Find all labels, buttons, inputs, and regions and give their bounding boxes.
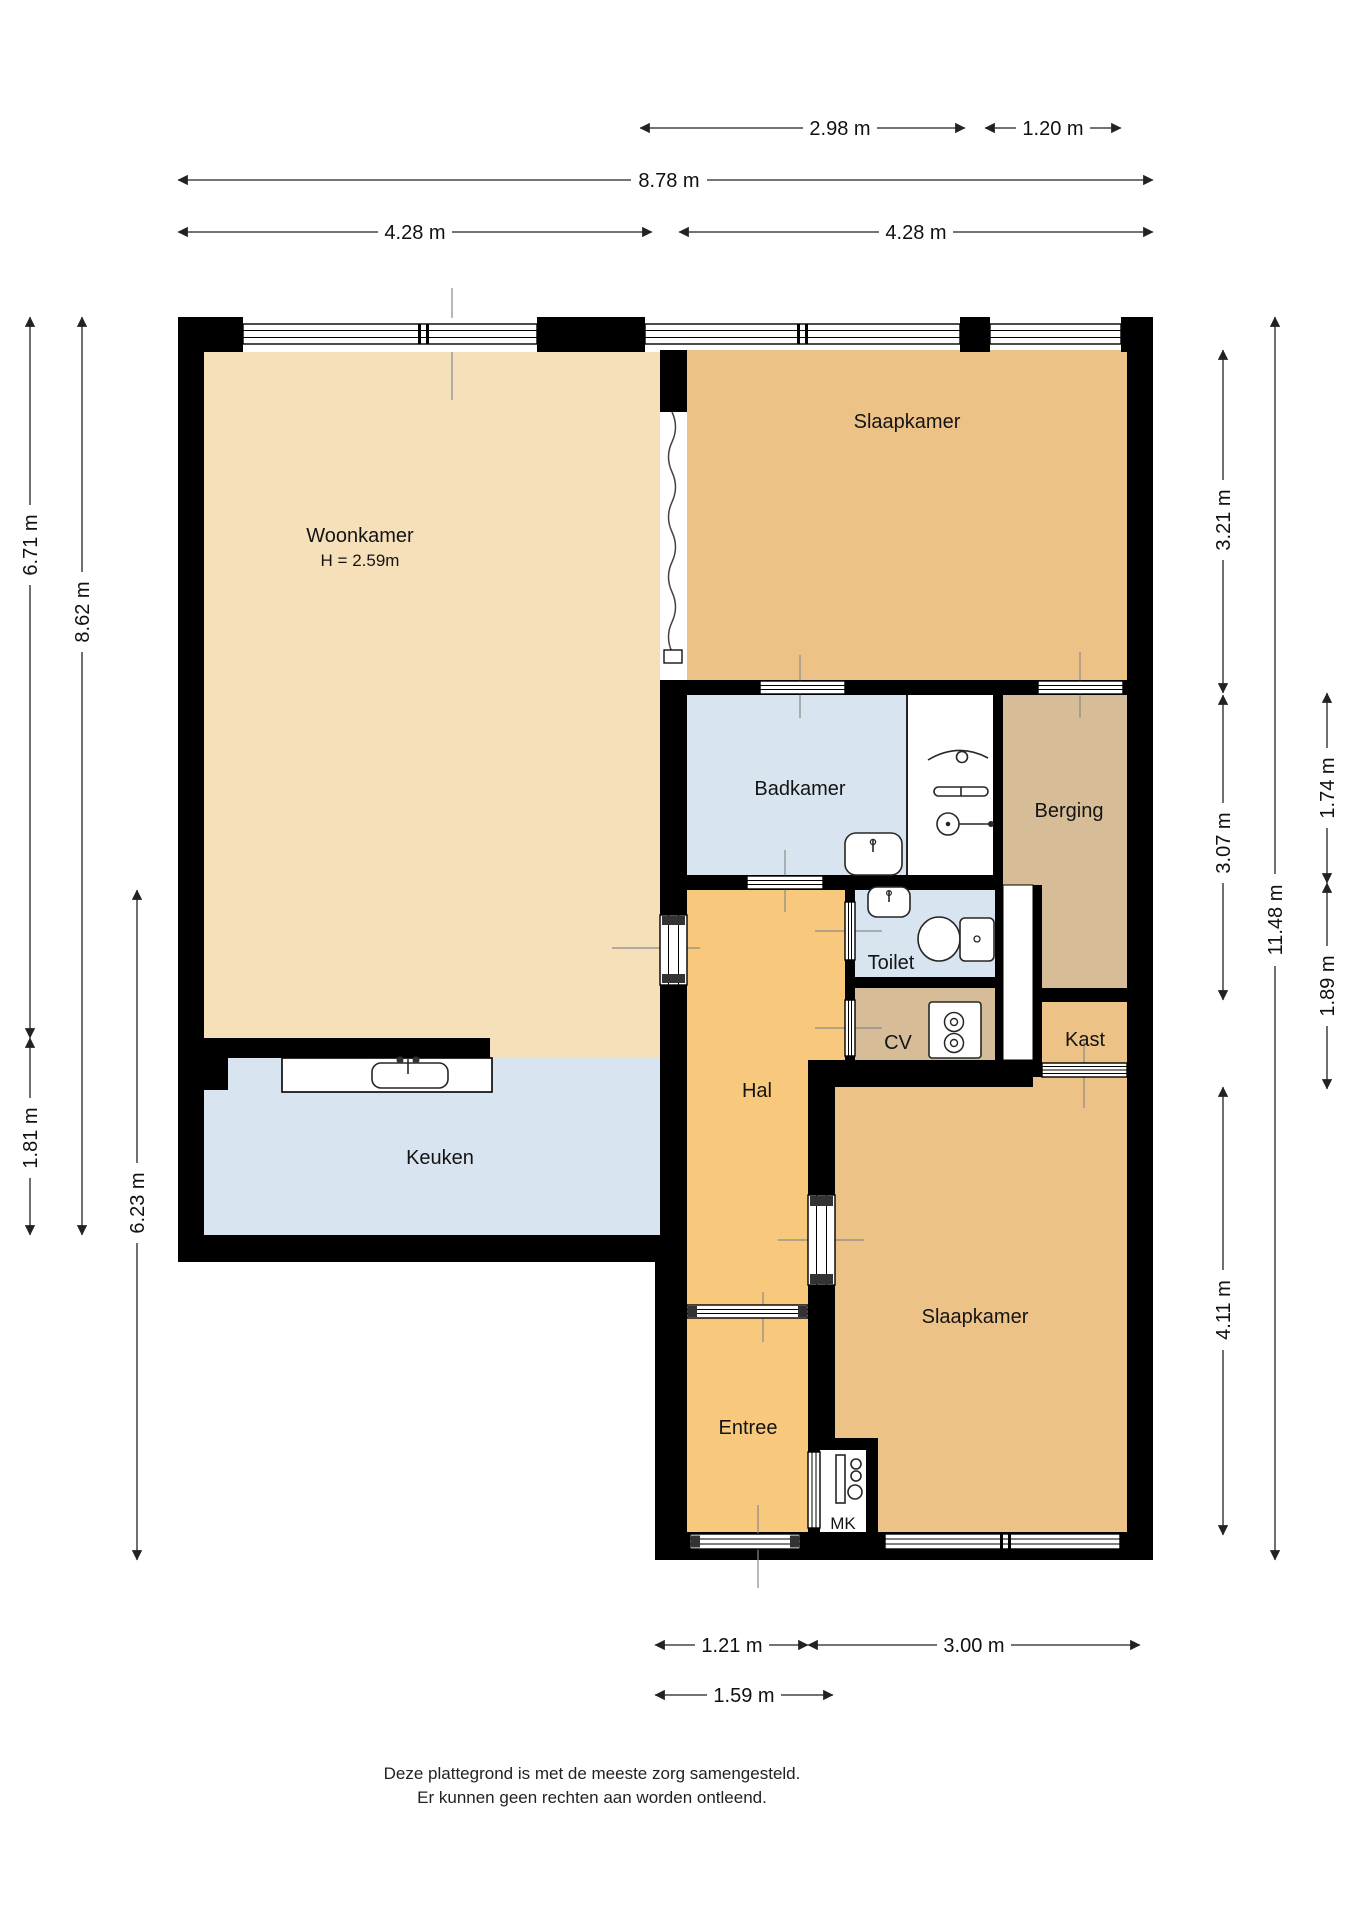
door-hal-entree — [687, 1305, 808, 1318]
hal-label: Hal — [742, 1080, 772, 1102]
dim-top-878: 8.78 m — [178, 168, 1153, 192]
kast-louvre-door — [1042, 1063, 1127, 1077]
svg-text:8.78 m: 8.78 m — [638, 170, 699, 192]
svg-text:1.81 m: 1.81 m — [20, 1107, 42, 1168]
hal-floor-lower — [687, 1087, 808, 1318]
svg-text:1.20 m: 1.20 m — [1022, 118, 1083, 140]
woonkamer-height-note: H = 2.59m — [321, 551, 400, 570]
svg-text:2.98 m: 2.98 m — [809, 118, 870, 140]
svg-text:4.11 m: 4.11 m — [1213, 1280, 1235, 1340]
dim-top-298: 2.98 m — [640, 116, 965, 140]
mk-label: MK — [830, 1514, 856, 1533]
curtain-partition — [664, 412, 682, 663]
berging-label: Berging — [1035, 800, 1104, 822]
dim-left-181: 1.81 m — [18, 1038, 42, 1235]
door-hal-slaapkamer — [808, 1195, 835, 1285]
toilet-fontein — [868, 887, 910, 917]
floor-plan: Woonkamer H = 2.59m Slaapkamer Badkamer … — [0, 0, 1358, 1920]
dim-left-671: 6.71 m — [18, 317, 42, 1038]
dim-left-862: 8.62 m — [70, 317, 94, 1235]
svg-text:3.00 m: 3.00 m — [943, 1635, 1004, 1657]
svg-text:6.23 m: 6.23 m — [127, 1172, 149, 1233]
window-woonkamer-top — [243, 324, 537, 344]
kitchen-sink — [372, 1063, 448, 1088]
slaapkamer-top-label: Slaapkamer — [854, 411, 961, 433]
dim-bottom-300: 3.00 m — [808, 1633, 1140, 1657]
hal-floor-upper — [687, 890, 845, 1087]
floorplan-page: Woonkamer H = 2.59m Slaapkamer Badkamer … — [0, 0, 1358, 1920]
shower-floor — [908, 695, 993, 875]
door-mk — [808, 1452, 820, 1528]
window-slaapkamer-bottom — [885, 1534, 1120, 1549]
window-slaapkamer-badkamer — [760, 681, 845, 694]
svg-text:11.48 m: 11.48 m — [1265, 885, 1287, 956]
entree-label: Entree — [719, 1417, 778, 1439]
window-top-right — [990, 324, 1121, 344]
svg-text:1.59 m: 1.59 m — [713, 1685, 774, 1707]
dim-top-428-left: 4.28 m — [178, 220, 652, 244]
kitchen-counter — [282, 1057, 492, 1093]
dim-bottom-159: 1.59 m — [655, 1683, 833, 1707]
window-slaapkamer-berging — [1038, 681, 1123, 694]
woonkamer-keuken-opening-floor — [490, 1038, 660, 1060]
dim-right-174: 1.74 m — [1315, 693, 1339, 883]
dim-right-411: 4.11 m — [1211, 1087, 1235, 1535]
svg-text:4.28 m: 4.28 m — [885, 222, 946, 244]
cv-boiler — [929, 1002, 981, 1058]
svg-text:3.21 m: 3.21 m — [1213, 489, 1235, 550]
cv-label: CV — [884, 1032, 912, 1054]
disclaimer-line-2: Er kunnen geen rechten aan worden ontlee… — [417, 1788, 767, 1807]
dim-bottom-121: 1.21 m — [655, 1633, 808, 1657]
kast-label: Kast — [1065, 1029, 1105, 1051]
woonkamer-floor — [204, 352, 660, 1038]
dim-right-321: 3.21 m — [1211, 350, 1235, 693]
svg-text:3.07 m: 3.07 m — [1213, 812, 1235, 873]
toilet-label: Toilet — [868, 952, 915, 974]
dim-top-120: 1.20 m — [985, 116, 1121, 140]
shaft-void — [1003, 885, 1033, 1060]
door-front-entree — [690, 1534, 800, 1549]
door-woonkamer-hal — [660, 915, 687, 985]
dim-right-189: 1.89 m — [1315, 883, 1339, 1089]
svg-text:4.28 m: 4.28 m — [384, 222, 445, 244]
svg-text:1.89 m: 1.89 m — [1317, 955, 1339, 1016]
kitchen-tap — [397, 1057, 404, 1064]
door-toilet — [845, 902, 855, 960]
shower-shelf — [934, 787, 988, 796]
badkamer-sink — [845, 833, 902, 875]
door-cv — [845, 1000, 855, 1056]
woonkamer-label: Woonkamer — [306, 525, 414, 547]
badkamer-label: Badkamer — [754, 778, 845, 800]
svg-text:6.71 m: 6.71 m — [20, 514, 42, 575]
svg-text:8.62 m: 8.62 m — [72, 581, 94, 642]
slaapkamer-bottom-floor — [835, 1077, 1127, 1532]
disclaimer: Deze plattegrond is met de meeste zorg s… — [384, 1764, 801, 1807]
dim-left-623: 6.23 m — [125, 890, 149, 1560]
slaapkamer-bottom-label: Slaapkamer — [922, 1306, 1029, 1328]
keuken-label: Keuken — [406, 1147, 474, 1169]
dim-right-307: 3.07 m — [1211, 695, 1235, 1000]
slaapkamer-top-floor — [687, 350, 1127, 680]
dim-right-1148: 11.48 m — [1263, 317, 1287, 1560]
window-slaapkamer-top — [645, 324, 960, 344]
dim-top-428-right: 4.28 m — [679, 220, 1153, 244]
window-badkamer-hal — [747, 876, 823, 889]
disclaimer-line-1: Deze plattegrond is met de meeste zorg s… — [384, 1764, 801, 1783]
svg-text:1.74 m: 1.74 m — [1317, 757, 1339, 818]
svg-text:1.21 m: 1.21 m — [701, 1635, 762, 1657]
